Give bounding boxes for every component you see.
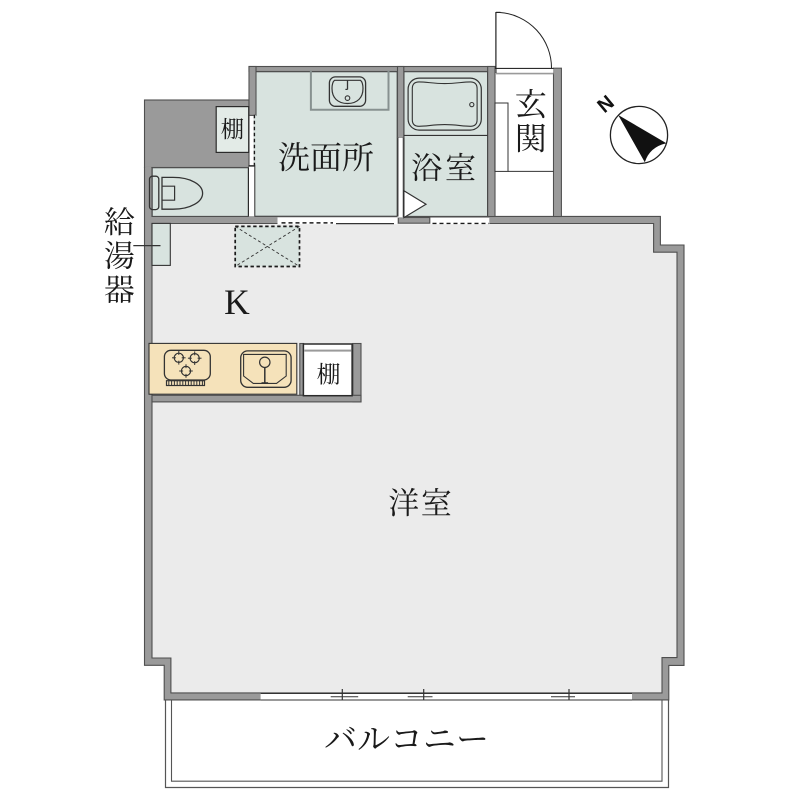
svg-text:K: K	[224, 282, 250, 322]
